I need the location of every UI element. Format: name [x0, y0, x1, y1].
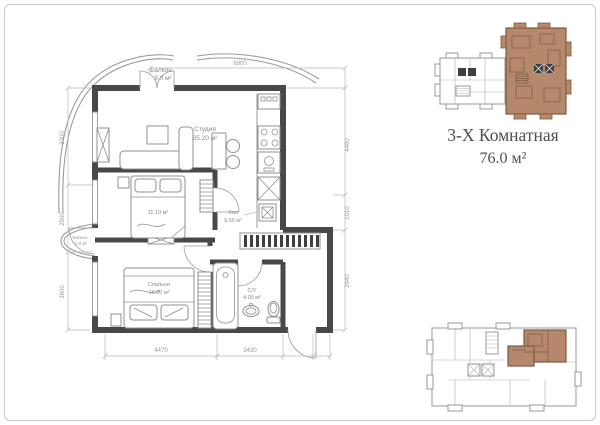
room-label-balcony-top-area: 9.0 м² [154, 75, 172, 82]
bed-icon-bedroom1 [131, 176, 185, 238]
oven-icon [258, 152, 280, 173]
svg-text:2500: 2500 [60, 212, 66, 226]
svg-text:1010: 1010 [345, 206, 351, 220]
room-label-bedroom1-area: 11.10 м² [148, 210, 169, 216]
washbasin-icon [243, 303, 259, 316]
svg-text:4480: 4480 [345, 138, 351, 152]
building-overview-bottom [427, 323, 581, 411]
building-wing-grey [435, 53, 505, 109]
dimension-right: 4480 1010 2940 [287, 86, 351, 333]
building-wing-highlighted [501, 23, 571, 119]
window-bedroom2 [92, 262, 98, 316]
room-label-bathroom-name: С/У [248, 288, 258, 294]
door-bedroom1 [215, 188, 239, 212]
stove-icon [258, 126, 280, 149]
bench-icon [111, 314, 121, 326]
dimension-top: 6900 [148, 61, 348, 88]
nightstand-icon [118, 177, 129, 188]
bathtub-icon [213, 263, 238, 329]
room-label-studio-area: 25.20 м² [193, 135, 219, 142]
window-bedroom1 [92, 180, 98, 224]
door-bathroom [238, 262, 262, 286]
room-label-bathroom-area: 4.00 м² [243, 295, 261, 301]
stairs-icon [486, 332, 498, 354]
kitchen-sink-icon [258, 94, 280, 109]
shoe-cabinet-icon [240, 233, 320, 249]
svg-text:2430: 2430 [243, 348, 257, 354]
dimension-bottom: 4470 2430 [103, 334, 333, 360]
svg-text:4470: 4470 [154, 348, 168, 354]
page-canvas: Студия 25.20 м² 11.10 м² Спальня 16.00 м… [0, 0, 600, 425]
kitchen-cabinet-icon [258, 177, 280, 200]
floorplan-sheet: Студия 25.20 м² 11.10 м² Спальня 16.00 м… [0, 0, 600, 425]
room-label-balcony-left-name: Балкон [72, 235, 88, 240]
room-label-hall-area: 9.55 м² [224, 218, 242, 224]
toilet-icon [267, 302, 280, 324]
room-label-hall-name: Хол [228, 210, 238, 216]
svg-text:3600: 3600 [60, 285, 66, 299]
dimension-left: 3300 2500 3600 [60, 86, 92, 333]
tv-unit-icon [97, 128, 109, 162]
svg-text:3300: 3300 [60, 131, 66, 145]
svg-text:2940: 2940 [345, 274, 351, 288]
door-entry [288, 330, 316, 358]
room-label-studio-name: Студия [194, 126, 216, 133]
wardrobe-icon-bedroom1 [200, 180, 213, 212]
building-overview-top [435, 23, 571, 119]
room-label-bedroom2-name: Спальня [148, 282, 170, 288]
room-label-bedroom2-area: 16.00 м² [149, 290, 170, 296]
room-label-balcony-left-area: 2.0 м² [75, 241, 88, 246]
electrical-panel-icon [244, 204, 276, 221]
coffee-table-icon [147, 126, 168, 144]
floor-plan: Студия 25.20 м² 11.10 м² Спальня 16.00 м… [59, 54, 351, 360]
apartment-type-title: 3-Х Комнатная [447, 125, 558, 145]
svg-text:6900: 6900 [233, 61, 247, 67]
wardrobe-icon-bedroom2 [198, 272, 211, 328]
stairs-icon [456, 86, 470, 96]
bed-icon-bedroom2 [124, 268, 194, 328]
apartment-area-label: 76.0 м² [480, 150, 527, 167]
